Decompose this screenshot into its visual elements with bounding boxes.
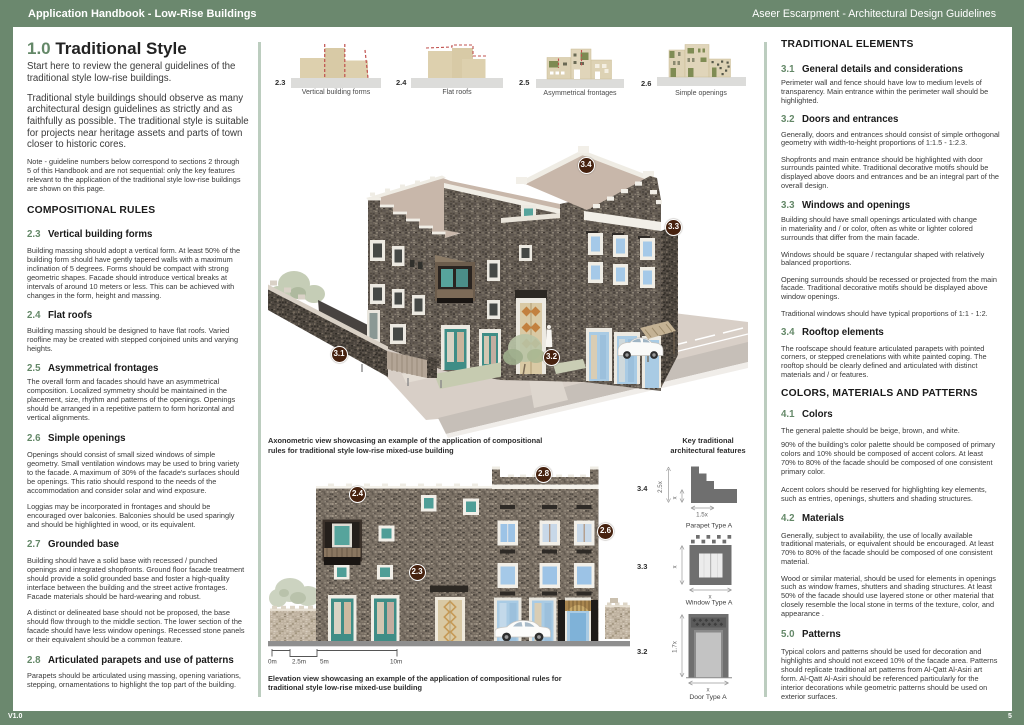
svg-text:10m: 10m — [390, 659, 402, 666]
svg-text:2.5x: 2.5x — [657, 480, 664, 493]
svg-text:x: x — [672, 565, 679, 569]
svg-text:Door Type A: Door Type A — [689, 694, 727, 701]
svg-text:x: x — [706, 687, 710, 694]
svg-text:Parapet Type A: Parapet Type A — [686, 523, 733, 530]
svg-text:x: x — [672, 496, 679, 500]
svg-text:5m: 5m — [320, 659, 329, 666]
svg-text:Window Type A: Window Type A — [686, 600, 733, 607]
svg-text:0m: 0m — [268, 659, 277, 666]
svg-text:2.5m: 2.5m — [292, 659, 306, 666]
svg-text:1.5x: 1.5x — [696, 512, 709, 519]
svg-text:1.7x: 1.7x — [672, 640, 679, 653]
